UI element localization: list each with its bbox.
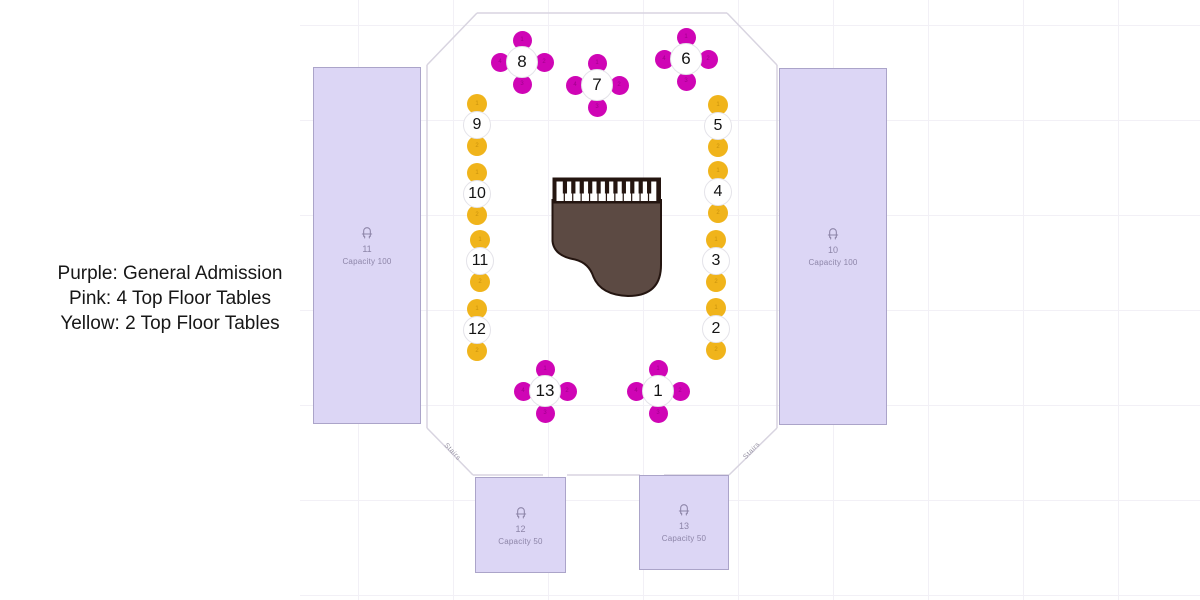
seat-icon: [825, 226, 841, 242]
section-number: 11: [362, 244, 371, 254]
ga-section-11[interactable]: 11Capacity 100: [313, 67, 421, 424]
seat-icon: [676, 502, 692, 518]
seat[interactable]: 2: [467, 205, 487, 225]
ga-section-10[interactable]: 10Capacity 100: [779, 68, 887, 425]
seat[interactable]: 2: [708, 137, 728, 157]
seat[interactable]: 2: [706, 340, 726, 360]
seat[interactable]: 2: [470, 272, 490, 292]
section-number: 13: [679, 521, 689, 531]
seat-icon: [513, 505, 529, 521]
table-number-circle[interactable]: 8: [506, 46, 538, 78]
table-number-circle[interactable]: 13: [529, 375, 561, 407]
table-number-circle[interactable]: 12: [463, 316, 491, 344]
section-capacity: Capacity 50: [498, 537, 542, 546]
table-number-circle[interactable]: 1: [642, 375, 674, 407]
table-number-circle[interactable]: 5: [704, 112, 732, 140]
ga-section-13[interactable]: 13Capacity 50: [639, 475, 729, 570]
section-capacity: Capacity 50: [662, 534, 706, 543]
table-number-circle[interactable]: 3: [702, 247, 730, 275]
tables-layer: 11Capacity 10010Capacity 10012Capacity 5…: [0, 0, 1200, 600]
table-number-circle[interactable]: 10: [463, 180, 491, 208]
section-number: 10: [828, 245, 838, 255]
table-number-circle[interactable]: 7: [581, 69, 613, 101]
seat-icon: [359, 225, 375, 241]
seat[interactable]: 2: [467, 136, 487, 156]
table-number-circle[interactable]: 6: [670, 43, 702, 75]
section-capacity: Capacity 100: [342, 257, 391, 266]
seat[interactable]: 2: [708, 203, 728, 223]
ga-section-12[interactable]: 12Capacity 50: [475, 477, 566, 573]
section-capacity: Capacity 100: [808, 258, 857, 267]
table-number-circle[interactable]: 4: [704, 178, 732, 206]
table-number-circle[interactable]: 2: [702, 315, 730, 343]
section-number: 12: [515, 524, 525, 534]
seat[interactable]: 2: [706, 272, 726, 292]
seat[interactable]: 2: [467, 341, 487, 361]
seat-map-screen: Purple: General Admission Pink: 4 Top Fl…: [0, 0, 1200, 600]
table-number-circle[interactable]: 9: [463, 111, 491, 139]
table-number-circle[interactable]: 11: [466, 247, 494, 275]
